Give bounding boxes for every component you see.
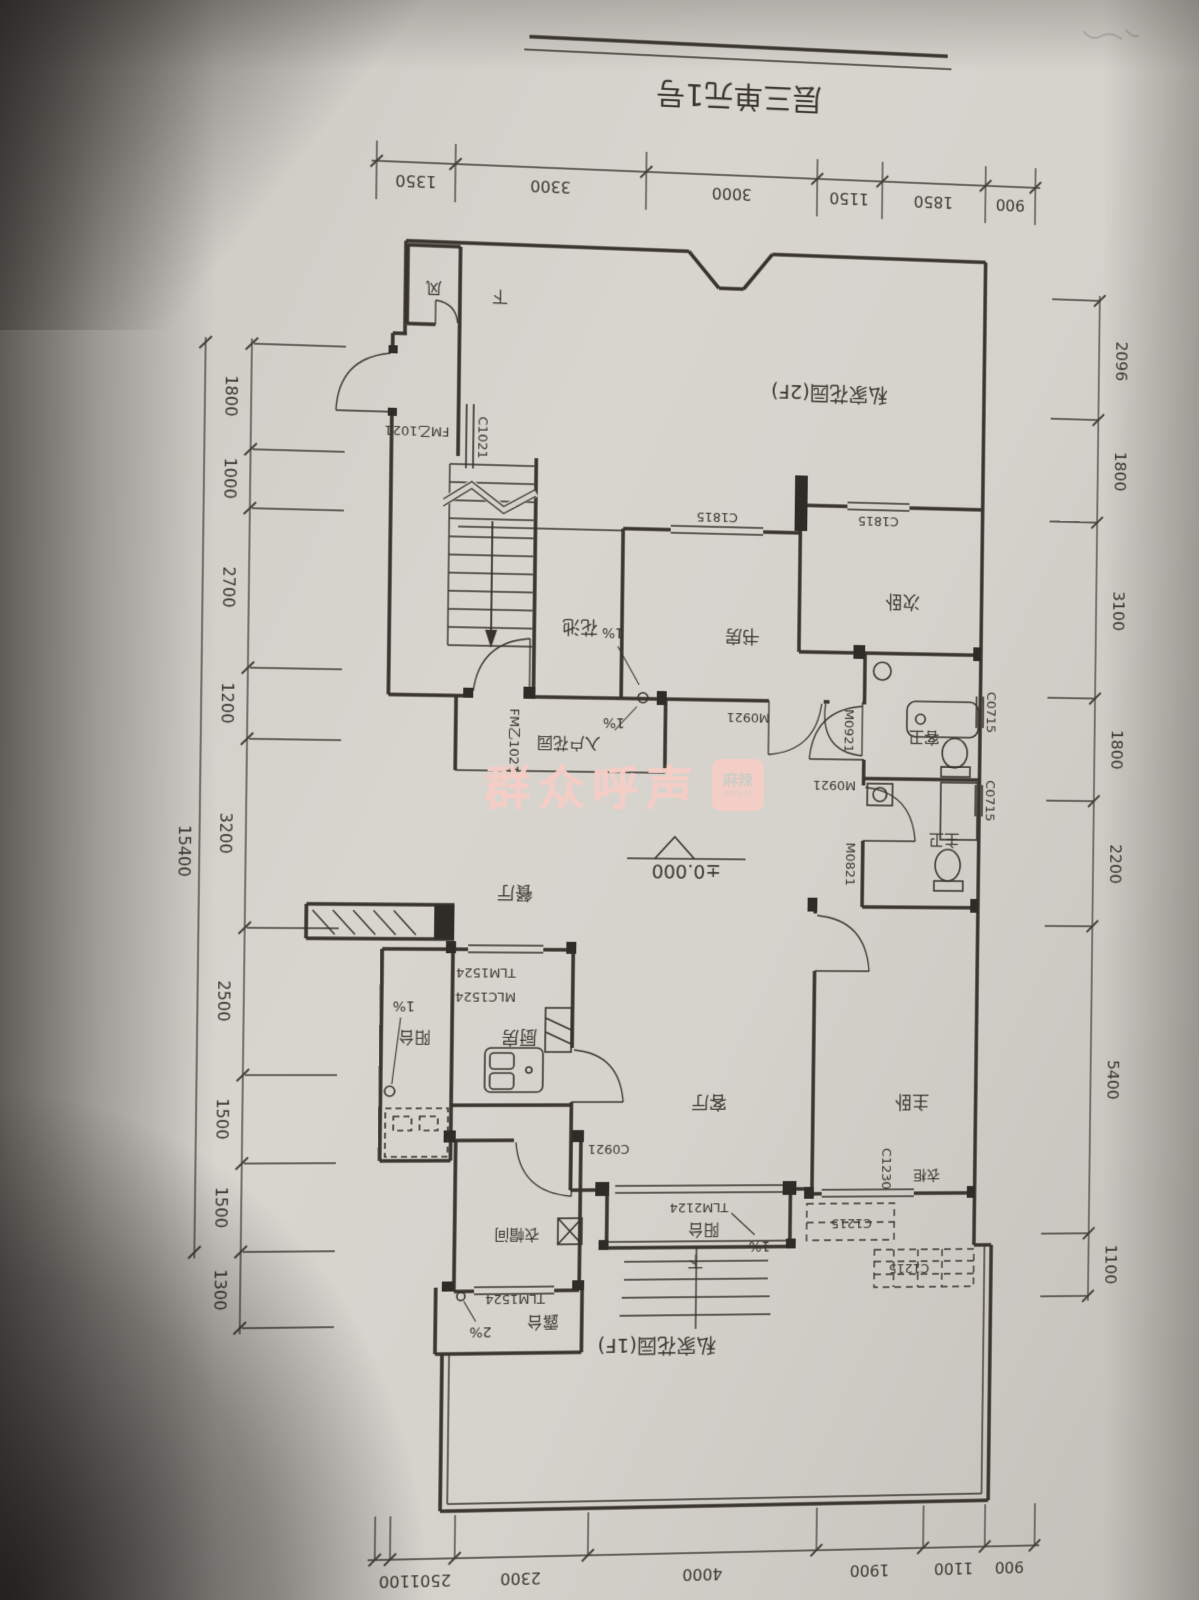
room-label-flowerbed: 花池	[562, 615, 598, 637]
room-label-guest-bath: 客卫	[909, 728, 940, 747]
dim-left-total: 15400	[174, 825, 194, 877]
slope-2: 1%	[603, 714, 625, 730]
code-c1230: C1230	[878, 1148, 893, 1190]
room-label-vent: 风	[426, 278, 442, 297]
code-c1215-b: C1215	[889, 1260, 930, 1275]
elevation-marker: ±0.000	[627, 836, 746, 883]
code-c0715-a: C0715	[983, 692, 998, 734]
room-label-dining: 餐厅	[497, 881, 533, 902]
sink-guest	[874, 662, 892, 680]
toilet-guest	[942, 738, 967, 768]
dim-bottom-2: 4000	[682, 1564, 722, 1584]
dim-top-1: 3300	[530, 176, 571, 196]
slope-1: 1%	[602, 624, 624, 640]
slope-4: 1%	[748, 1238, 770, 1254]
dim-left-1: 1000	[220, 457, 240, 499]
dim-bottom-3: 1900	[850, 1561, 890, 1580]
stove	[545, 1008, 571, 1052]
dim-right-3: 1800	[1108, 730, 1126, 770]
code-c1815-a: C1815	[696, 509, 738, 525]
code-c1021: C1021	[474, 416, 489, 459]
floor-drain	[384, 1086, 394, 1096]
dim-top-5: 900	[996, 195, 1025, 215]
code-fm1021-a: FM乙1021	[384, 422, 450, 440]
dim-left-5: 2500	[214, 980, 234, 1021]
room-label-master-bath: 主卫	[929, 831, 960, 850]
dim-left-2: 2700	[219, 566, 239, 608]
stair	[442, 481, 536, 649]
room-label-cloakroom: 衣帽间	[494, 1226, 539, 1244]
page-title: 层三单元1号	[656, 75, 822, 117]
code-tlm2124: TLM2124	[670, 1199, 730, 1214]
dim-top-3: 1150	[829, 188, 869, 208]
dim-bottom-1: 2300	[500, 1568, 541, 1588]
room-label-second-bedroom: 次卧	[885, 590, 920, 611]
room-label-terrace: 露台	[527, 1313, 559, 1332]
washer-box	[385, 1108, 448, 1157]
dim-top-4: 1850	[914, 192, 953, 212]
floorplan-drawing: 层三单元1号 135033003000115018509002501100230…	[0, 0, 1189, 1600]
dim-left-4: 3200	[216, 812, 236, 854]
code-fm1021-b: FM乙1021	[505, 708, 522, 773]
fixture-layer	[382, 642, 979, 1323]
code-m0921-a: M0921	[726, 709, 770, 724]
dim-right-0: 2096	[1112, 341, 1130, 381]
slope-5: 2%	[469, 1323, 491, 1339]
room-label-garden2f: 私家花园(2F)	[771, 379, 888, 406]
room-label-service-balcony: 阳台	[398, 1028, 431, 1047]
code-m0821: M0821	[842, 842, 857, 886]
code-c0921: C0921	[588, 1141, 630, 1156]
dimension-layer: 1350330030001150185090025011002300400019…	[165, 132, 1132, 1596]
room-label-wardrobe: 衣柜	[913, 1167, 940, 1183]
code-c1815-b: C1815	[858, 513, 899, 529]
dim-left-0: 1800	[221, 375, 241, 417]
room-label-garden1f: 私家花园(1F)	[597, 1333, 716, 1358]
room-label-study: 书房	[725, 625, 761, 646]
dim-top-0: 1350	[395, 171, 436, 192]
room-label-kitchen: 厨房	[501, 1026, 537, 1047]
room-label-living: 客厅	[691, 1091, 727, 1112]
dim-left-7: 1500	[211, 1187, 231, 1229]
toilet-master	[935, 849, 960, 881]
dim-bottom-5: 900	[995, 1557, 1024, 1576]
title-block: 层三单元1号	[524, 36, 952, 122]
floor-drain	[457, 1292, 465, 1300]
dim-right-6: 1100	[1101, 1244, 1119, 1284]
dim-left-3: 1200	[217, 682, 237, 724]
room-label-master-bedroom: 主卧	[895, 1091, 930, 1112]
dim-left-8: 1300	[210, 1269, 230, 1311]
corner-marks	[1084, 27, 1139, 40]
code-tlm1524-b: TLM1524	[485, 1291, 546, 1307]
code-mlc1524: MLC1524	[455, 989, 516, 1004]
photo-of-floorplan: 层三单元1号 135033003000115018509002501100230…	[0, 0, 1199, 1600]
balcony-down-label: 下	[687, 1252, 703, 1271]
code-c0715-b: C0715	[982, 780, 997, 822]
code-m0921-b: M0921	[841, 709, 856, 753]
dim-right-5: 5400	[1104, 1060, 1122, 1100]
dim-right-4: 2200	[1106, 844, 1124, 884]
room-label-front-balcony: 阳台	[688, 1220, 720, 1239]
dim-left-6: 1500	[212, 1098, 232, 1139]
code-m0921-c: M0921	[813, 777, 856, 792]
elevation-text: ±0.000	[651, 860, 721, 883]
room-label-entry-garden: 入户花园	[537, 733, 601, 753]
dim-right-1: 1800	[1111, 451, 1129, 491]
dim-top-2: 3000	[712, 184, 752, 204]
dim-bottom-4: 1100	[934, 1559, 973, 1578]
code-c1215-a: C1215	[831, 1215, 872, 1230]
slope-3: 1%	[392, 997, 415, 1013]
dim-bottom-0: 2501100	[379, 1570, 451, 1591]
code-tlm1524-a: TLM1524	[456, 964, 517, 979]
dim-right-2: 3100	[1109, 591, 1127, 631]
stair-down-label: 下	[492, 287, 508, 306]
